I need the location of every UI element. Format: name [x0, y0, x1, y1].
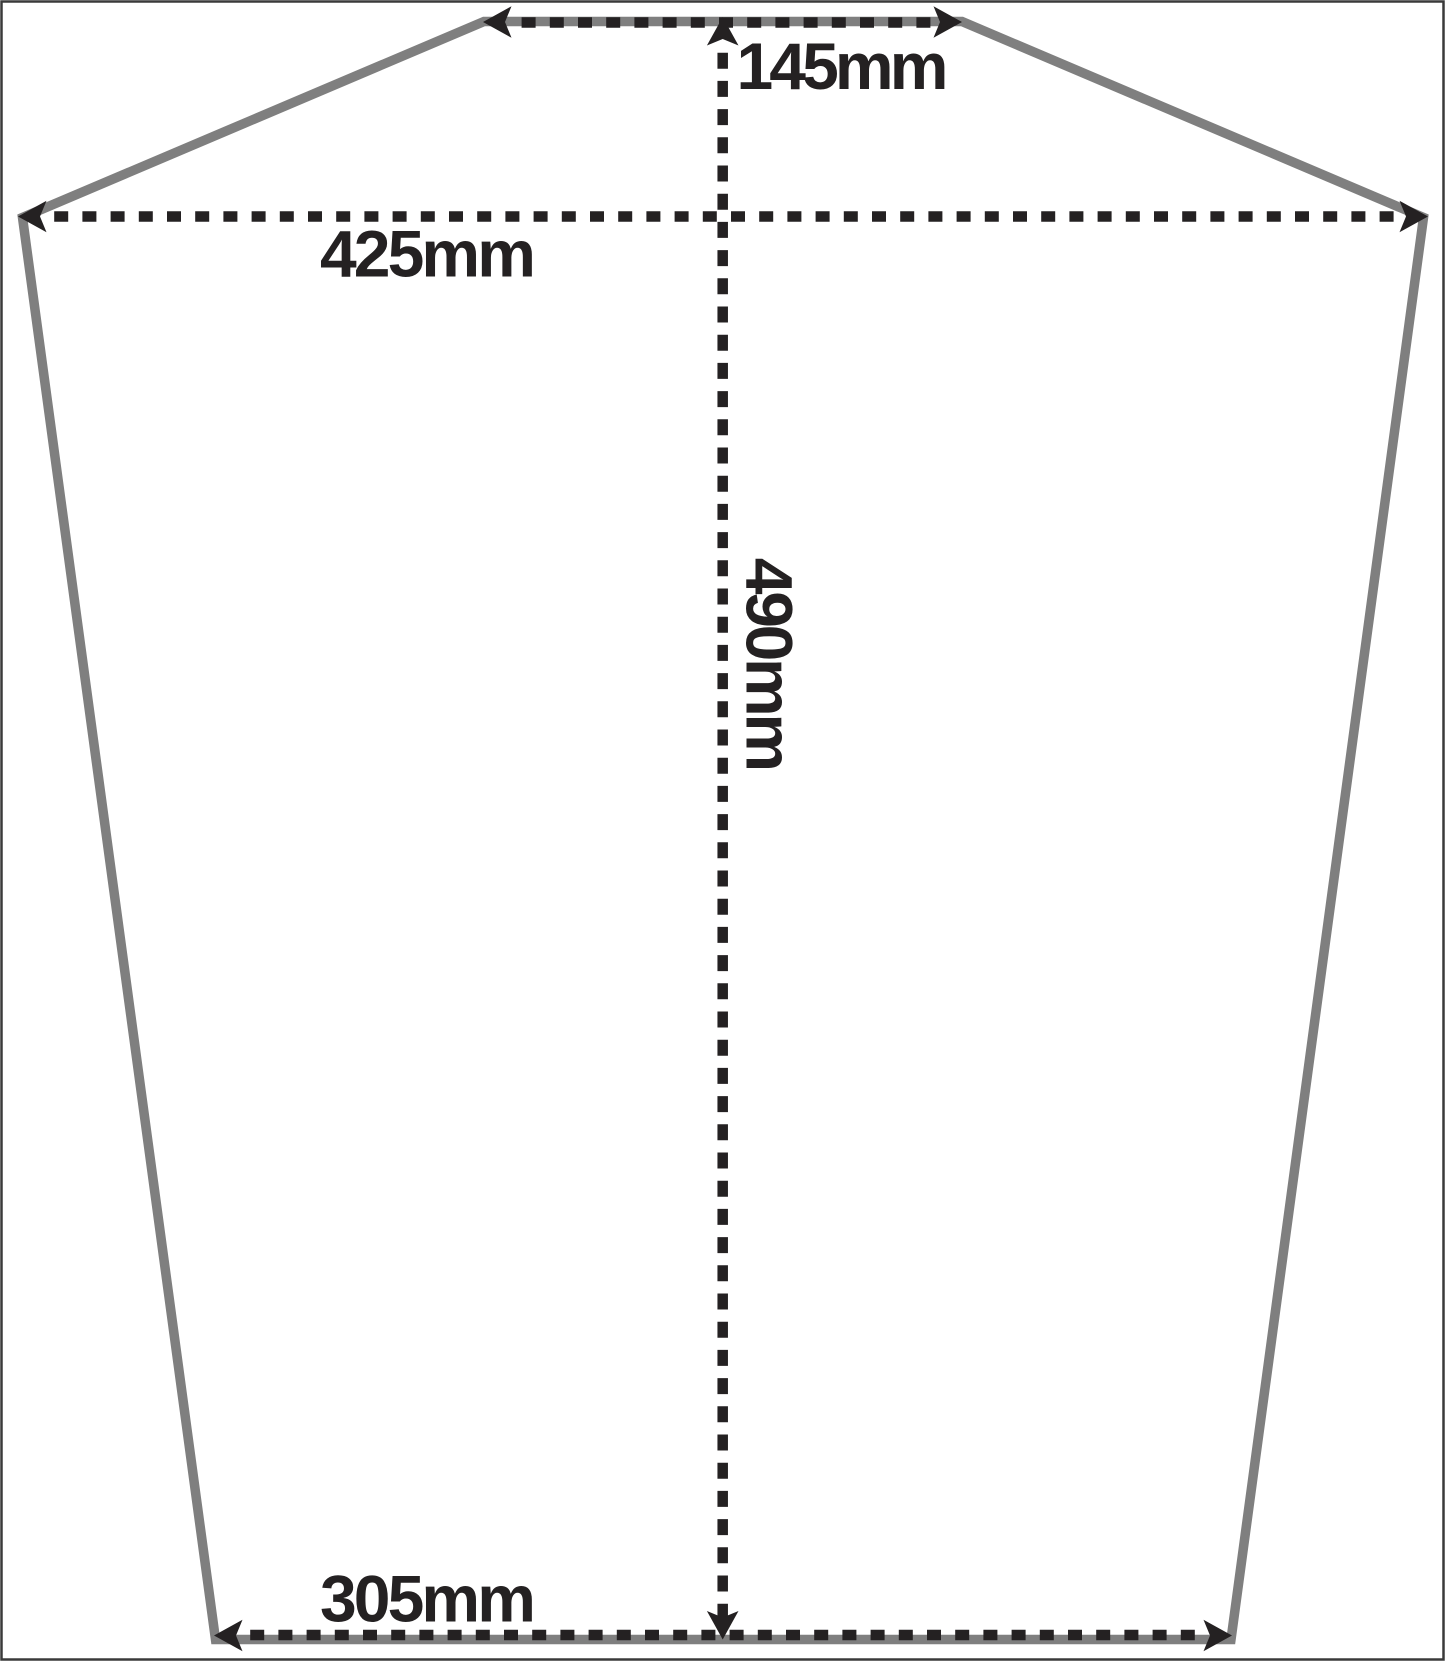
svg-text:305mm: 305mm [320, 1562, 533, 1636]
svg-text:425mm: 425mm [320, 217, 533, 291]
svg-text:145mm: 145mm [737, 29, 945, 103]
svg-text:490mm: 490mm [733, 558, 807, 769]
